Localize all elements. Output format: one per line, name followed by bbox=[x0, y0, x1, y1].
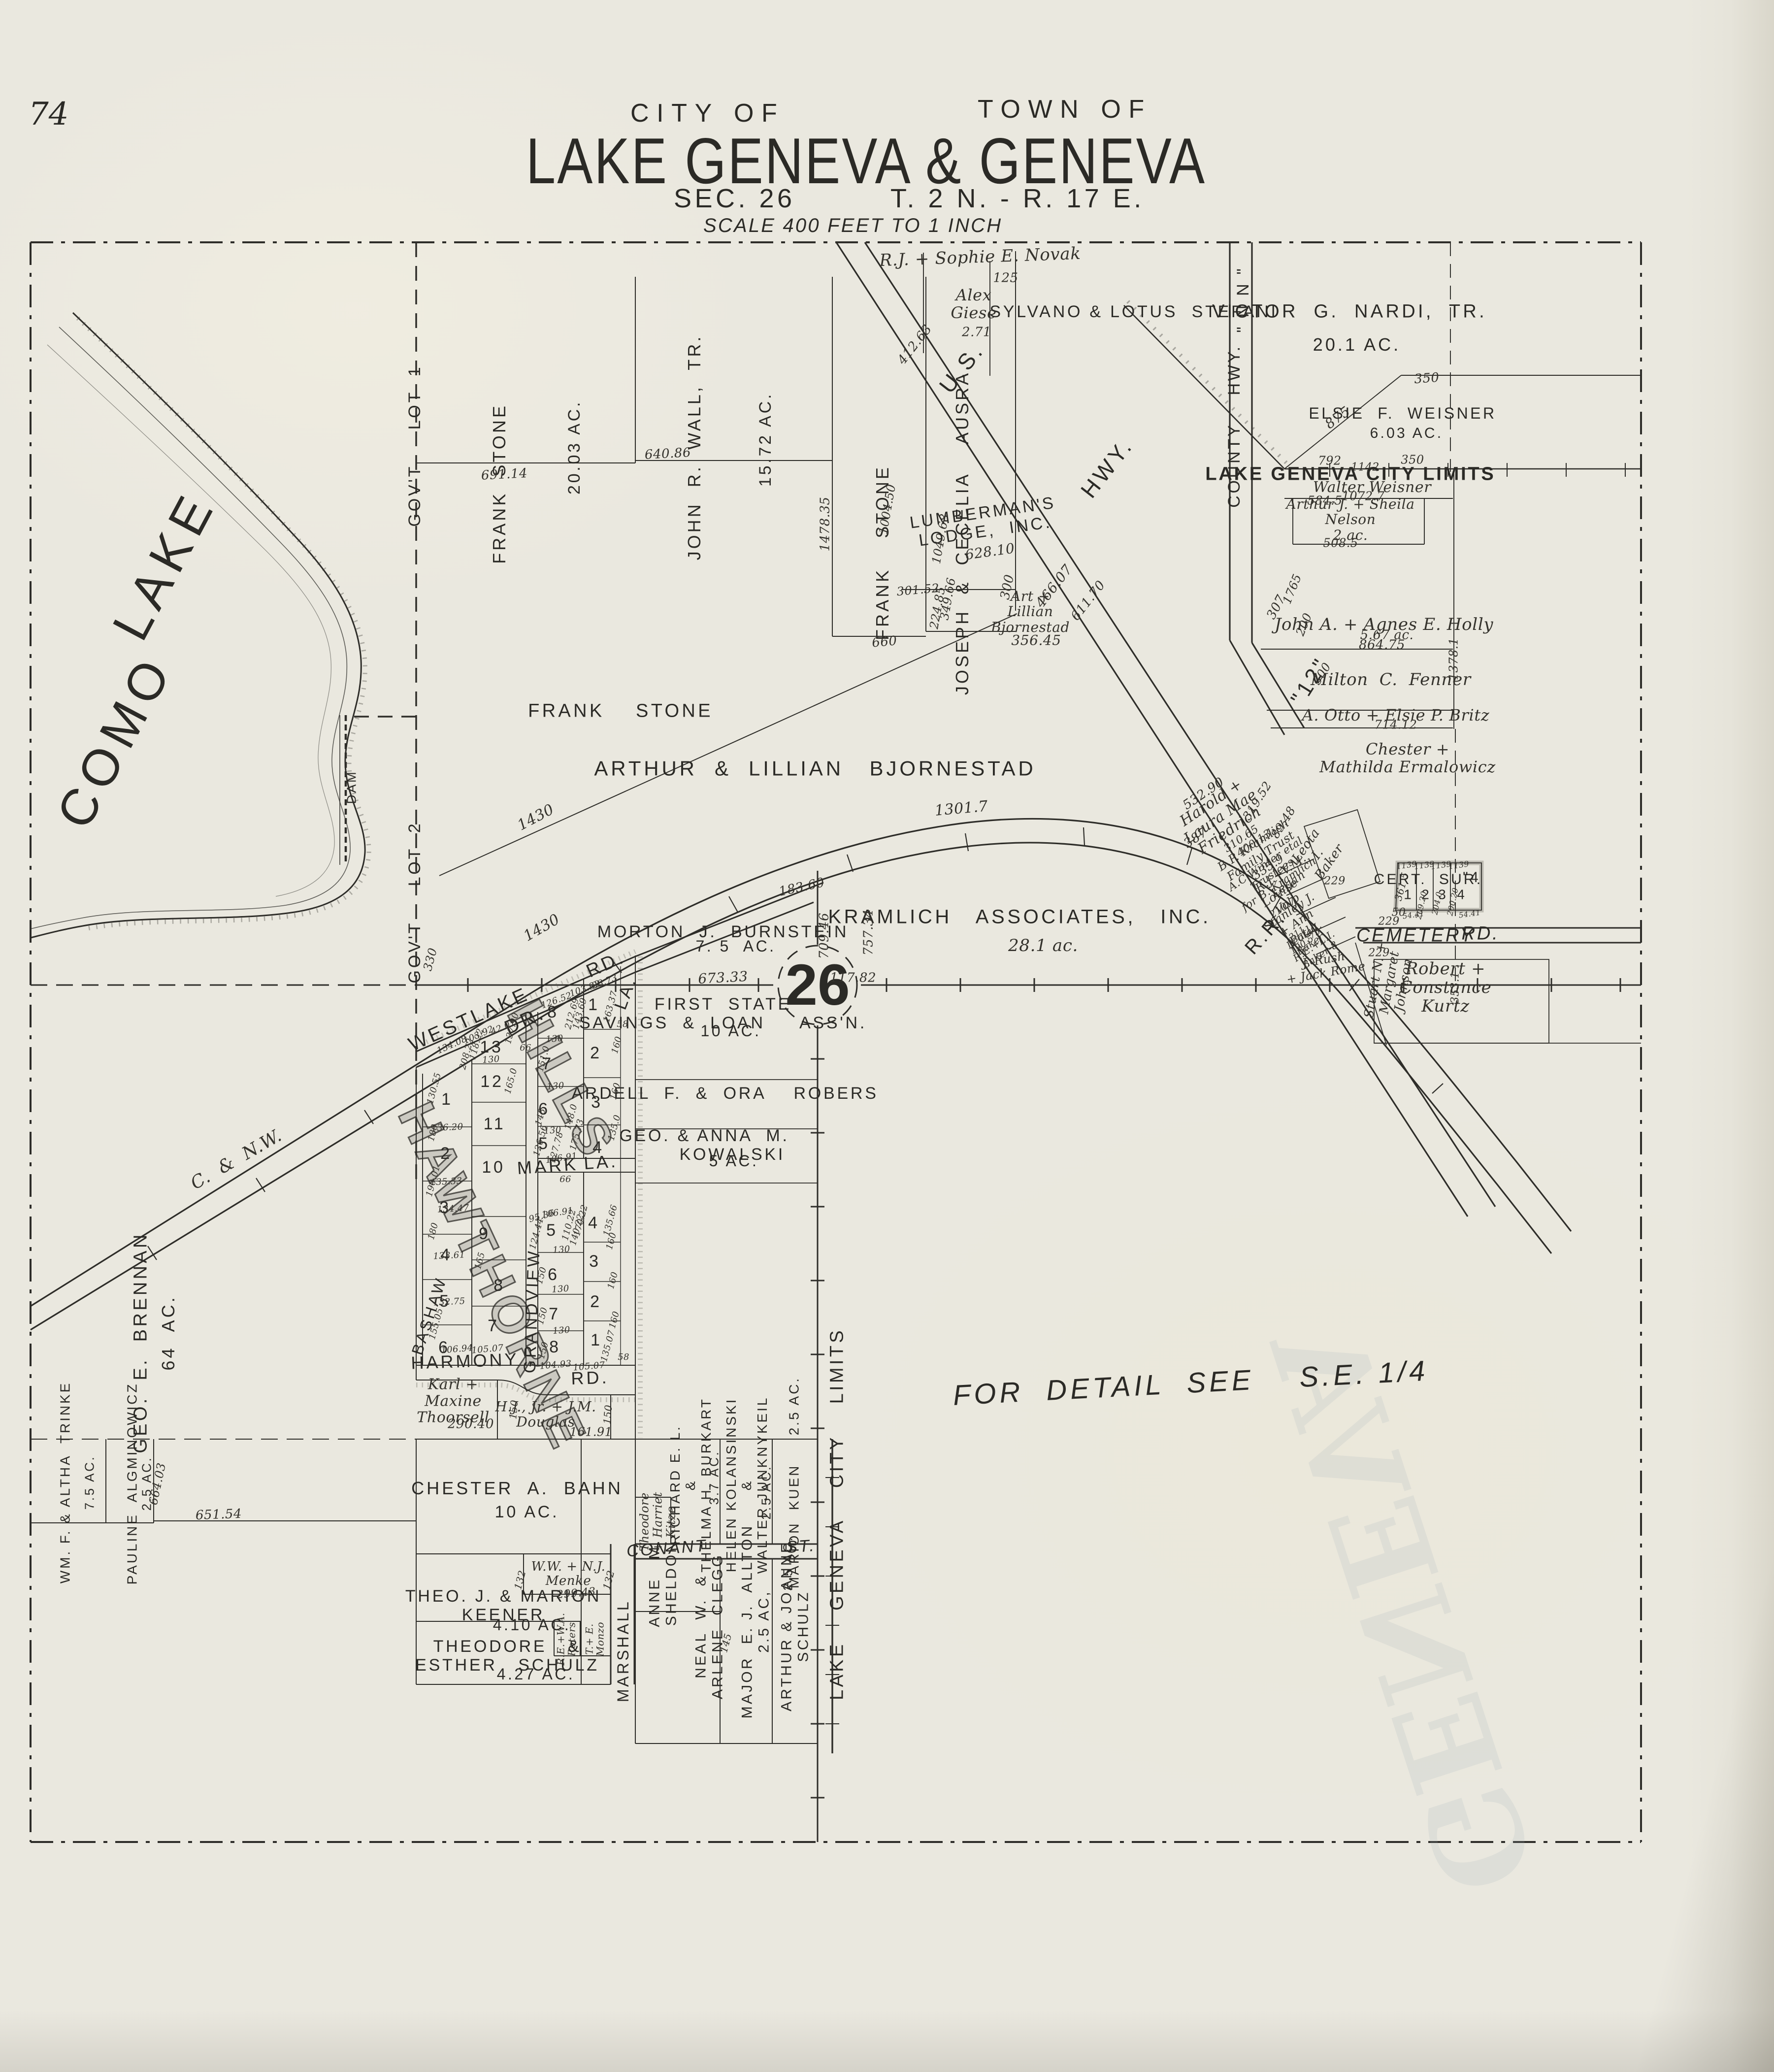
owner-stone-1: FRANK STONE bbox=[490, 403, 509, 564]
owner-menke: W.W. + N.J. Menke bbox=[531, 1560, 606, 1588]
lot: 3 bbox=[589, 1252, 601, 1271]
dim: 508.5 bbox=[1323, 537, 1358, 550]
dim: 66 bbox=[520, 1043, 531, 1053]
owner-ermalowicz: Chester + Mathilda Ermalowicz bbox=[1319, 741, 1496, 776]
owner-nardi: VICTOR G. NARDI, TR. bbox=[1212, 301, 1487, 323]
acreage: 15.72 AC. bbox=[756, 392, 775, 487]
dim: 125 bbox=[993, 271, 1018, 285]
owner-algminowicz: PAULINE ALGMINOWICZ bbox=[124, 1382, 139, 1585]
dim: 117.82 bbox=[830, 971, 876, 985]
owner-clegg: NEAL W. & ARLENE CLEGG bbox=[692, 1553, 725, 1699]
govt-lot-1: GOV'T LOT 1 bbox=[405, 365, 424, 527]
lot: 6 bbox=[548, 1265, 559, 1284]
dim: 2.71 bbox=[962, 325, 991, 339]
lot: 2 bbox=[590, 1292, 602, 1311]
dim: 640.86 bbox=[644, 446, 691, 462]
acreage: 3.7 AC. bbox=[707, 1450, 721, 1505]
lot: 8 bbox=[549, 1338, 561, 1356]
railroad-lines bbox=[31, 819, 1571, 1330]
title-township: T. 2 N. - R. 17 E. bbox=[890, 183, 1145, 214]
owner-bjornestad-small: Art + Lillian Bjornestad bbox=[991, 589, 1070, 635]
lot: 13 bbox=[480, 1038, 503, 1056]
dim: 133.61 bbox=[433, 1250, 465, 1262]
title-section: SEC. 26 bbox=[674, 183, 795, 214]
owner-kramlich-assoc: KRAMLICH ASSOCIATES, INC. bbox=[828, 906, 1211, 928]
title-town-of: TOWN OF bbox=[978, 95, 1152, 124]
dim: 161.91 bbox=[570, 1426, 613, 1439]
owner-bahn: CHESTER A. BAHN bbox=[411, 1479, 623, 1498]
dim: 290.40 bbox=[448, 1417, 494, 1431]
dim: 353.1 bbox=[1450, 971, 1462, 1003]
lake-shoreline bbox=[31, 313, 369, 938]
lot: 3 bbox=[591, 1093, 603, 1112]
acreage: 64 AC. bbox=[159, 1295, 178, 1370]
lot: 1 bbox=[591, 1331, 602, 1349]
dam: DAM bbox=[344, 770, 359, 804]
acreage: 20.1 AC. bbox=[1313, 335, 1401, 355]
owner-fenner: Milton C. Fenner bbox=[1311, 670, 1471, 689]
dim: 1478.35 bbox=[818, 496, 832, 551]
dim: 58 bbox=[618, 1352, 629, 1362]
dim: 864.75 bbox=[1359, 638, 1405, 652]
lot: 10 bbox=[482, 1158, 505, 1177]
acreage: 10 AC. bbox=[495, 1503, 559, 1521]
lot: 4 bbox=[588, 1214, 600, 1232]
dim: 130 bbox=[482, 1054, 500, 1066]
dim: 130 bbox=[553, 1325, 571, 1337]
dim: 229 bbox=[1324, 876, 1345, 888]
boundary-city-limits-v: LAKE GENEVA CITY LIMITS bbox=[827, 1328, 848, 1700]
cert-sur-number: "4 bbox=[1463, 869, 1480, 886]
road-county-nn: " N N " bbox=[1234, 266, 1252, 333]
lot: 12 bbox=[480, 1072, 503, 1091]
owner-allton: MAJOR E. J. ALLTON 2.5 AC, bbox=[739, 1524, 772, 1719]
dim: 135.33 bbox=[430, 1176, 462, 1188]
acreage: 20.03 AC. bbox=[565, 400, 584, 494]
lot: 1 bbox=[588, 995, 600, 1014]
dim: 130 bbox=[552, 1284, 570, 1295]
dim: 130 bbox=[553, 1245, 571, 1256]
dim: 356.45 bbox=[1011, 632, 1061, 648]
acreage: 2.5 AC. bbox=[759, 1465, 773, 1520]
dim: 673.33 bbox=[698, 969, 749, 987]
dim: 714.12 bbox=[1375, 719, 1417, 732]
lot: 7 bbox=[549, 1305, 560, 1323]
owner-sheldon: ANNE M. SHELDON bbox=[646, 1539, 679, 1627]
dim: 651.54 bbox=[195, 1507, 242, 1523]
owner-bjornestad: ARTHUR & LILLIAN BJORNESTAD bbox=[594, 756, 1036, 780]
lot: 2 bbox=[590, 1044, 602, 1062]
acreage: 5 AC. bbox=[709, 1152, 759, 1170]
govt-lot-2: GOV'T LOT 2 bbox=[405, 822, 424, 984]
owner-weisner: ELSIE F. WEISNER bbox=[1309, 405, 1496, 423]
dim: 150 bbox=[601, 1404, 614, 1424]
acreage: 4.27 AC. bbox=[497, 1666, 575, 1683]
dim: 58 bbox=[617, 1020, 628, 1029]
lot: 2 bbox=[440, 1144, 452, 1163]
lot: 11 bbox=[484, 1115, 506, 1133]
cert-lot: 1 bbox=[1404, 887, 1413, 902]
lot: 5 bbox=[546, 1221, 558, 1240]
acreage: 6.03 AC. bbox=[1370, 425, 1444, 442]
lot: 9 bbox=[479, 1224, 491, 1243]
dim: 130 bbox=[547, 1081, 565, 1092]
acreage: 7.5 AC. bbox=[82, 1455, 97, 1510]
page-number: 74 bbox=[29, 96, 68, 132]
owner-kurtz: Robert + Constance Kurtz bbox=[1400, 959, 1492, 1016]
dim: 150 bbox=[507, 1399, 520, 1419]
dim: 350 bbox=[1413, 371, 1440, 387]
dim: 691.14 bbox=[481, 466, 528, 483]
dim: 134.47 bbox=[437, 1203, 469, 1215]
dim: 130 bbox=[546, 1034, 564, 1045]
acreage: 28.1 ac. bbox=[1008, 936, 1078, 955]
road-cemetery-rd: RD. bbox=[1462, 923, 1500, 945]
acreage: 7. 5 AC. bbox=[695, 938, 776, 955]
dim: 132.75 bbox=[433, 1296, 465, 1308]
plat-map-sheet: 74 CITY OF TOWN OF LAKE GENEVA & GENEVA … bbox=[0, 0, 1774, 2072]
lot: 7 bbox=[488, 1316, 499, 1335]
lot: 1 bbox=[441, 1090, 453, 1109]
title-scale: SCALE 400 FEET TO 1 INCH bbox=[703, 215, 1002, 237]
lot: 4 bbox=[592, 1138, 604, 1157]
owner-kowalski: GEO. & ANNA M. KOWALSKI bbox=[619, 1126, 789, 1164]
road-marshall: MARSHALL bbox=[615, 1600, 632, 1702]
lot: 8 bbox=[493, 1276, 505, 1295]
dim: 757.34 bbox=[861, 909, 876, 955]
dim: 66 bbox=[559, 1175, 571, 1184]
dim: 660 bbox=[871, 634, 898, 650]
owner-trinke: WM. F. & ALTHA TRINKE bbox=[57, 1381, 72, 1583]
owner-schulz-aj: ARTHUR & JOANNE SCHULZ bbox=[778, 1541, 811, 1711]
owner-stone-3: FRANK STONE bbox=[528, 701, 713, 722]
acreage: 10 AC. bbox=[701, 1022, 761, 1040]
